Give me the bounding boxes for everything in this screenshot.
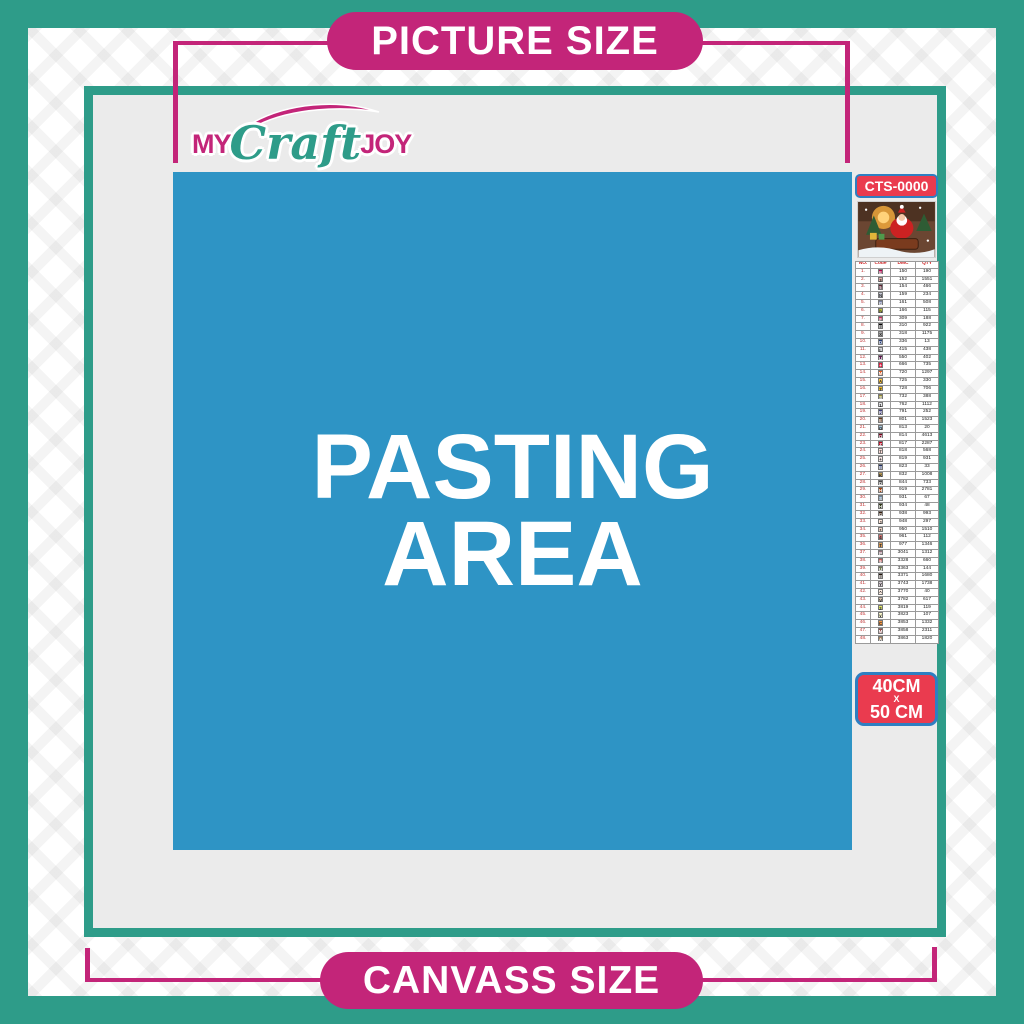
table-row: 6.h166115	[856, 307, 939, 315]
table-cell: +	[871, 362, 891, 370]
table-cell: K	[871, 471, 891, 479]
table-row: 28.D844733	[856, 479, 939, 487]
table-cell: 5	[871, 284, 891, 292]
table-cell: 1680	[916, 573, 939, 581]
legend-column-header: QTY	[916, 262, 939, 269]
table-cell: 1551	[916, 276, 939, 284]
color-code-swatch: G	[878, 511, 884, 517]
table-cell: 2	[871, 604, 891, 612]
table-cell: 801	[891, 417, 916, 425]
table-cell: 415	[891, 346, 916, 354]
table-cell: 336	[891, 339, 916, 347]
table-cell: L	[871, 346, 891, 354]
table-cell: 725	[891, 378, 916, 386]
color-legend-table: NO.CodeDMCQTY 1.E1501902.315215513.51544…	[855, 261, 939, 644]
color-code-swatch: M	[878, 370, 884, 376]
table-row: 12.U550402	[856, 354, 939, 362]
color-code-swatch: F	[878, 316, 884, 322]
table-row: 44.23819119	[856, 604, 939, 612]
table-cell: 813	[891, 424, 916, 432]
table-row: 31.H93448	[856, 503, 939, 511]
canvass-size-bracket-left-stub	[85, 948, 90, 982]
table-cell: M	[871, 628, 891, 636]
table-row: 11.L415438	[856, 346, 939, 354]
table-row: 36.T9771346	[856, 542, 939, 550]
pasting-area-line2: AREA	[311, 511, 713, 598]
table-cell: U	[871, 354, 891, 362]
table-cell: 13.	[856, 362, 871, 370]
table-cell: 10.	[856, 339, 871, 347]
table-row: 34.*9501510	[856, 526, 939, 534]
table-cell: 310	[891, 323, 916, 331]
picture-size-bracket-right-stub	[845, 41, 850, 163]
color-code-swatch: U	[878, 566, 884, 572]
table-row: 40.B33711680	[856, 573, 939, 581]
table-cell: Y	[871, 581, 891, 589]
table-cell: 1008	[916, 471, 939, 479]
color-code-swatch: T	[878, 542, 884, 548]
table-cell: 388	[916, 393, 939, 401]
table-row: 14.M7201297	[856, 370, 939, 378]
table-cell: 3853	[891, 620, 916, 628]
table-cell: 330	[916, 378, 939, 386]
table-cell: 402	[916, 354, 939, 362]
table-cell: 159	[891, 292, 916, 300]
table-cell: +	[871, 456, 891, 464]
table-cell: 817	[891, 440, 916, 448]
table-cell: 23.	[856, 440, 871, 448]
table-cell: 36.	[856, 542, 871, 550]
table-cell: 31.	[856, 503, 871, 511]
table-cell: B	[871, 323, 891, 331]
table-row: 7.F309188	[856, 315, 939, 323]
color-code-swatch: S	[878, 495, 884, 501]
canvass-size-banner: CANVASS SIZE	[320, 952, 703, 1009]
table-cell: 47.	[856, 628, 871, 636]
table-cell: S	[871, 495, 891, 503]
table-cell: 112	[916, 534, 939, 542]
pasting-area: PASTING AREA	[173, 172, 852, 850]
table-cell: 9	[871, 557, 891, 565]
table-cell: 823	[891, 464, 916, 472]
table-cell: 732	[891, 393, 916, 401]
table-cell: 931	[891, 495, 916, 503]
artwork-thumbnail	[857, 201, 936, 258]
table-cell: 3823	[891, 612, 916, 620]
pasting-area-label: PASTING AREA	[311, 424, 713, 599]
logo-word-craft: Craft	[230, 120, 362, 166]
table-cell: 3770	[891, 589, 916, 597]
table-row: 16.7728706	[856, 385, 939, 393]
table-cell: Z	[871, 440, 891, 448]
table-cell: 24.	[856, 448, 871, 456]
table-cell: 22.	[856, 432, 871, 440]
table-cell: 1510	[916, 526, 939, 534]
table-row: 33.J948297	[856, 518, 939, 526]
table-row: 9.X3181175	[856, 331, 939, 339]
table-row: 45.v3823107	[856, 612, 939, 620]
color-code-swatch: D	[878, 480, 884, 486]
table-cell: 3041	[891, 549, 916, 557]
color-code-swatch: G	[878, 300, 884, 306]
table-row: 30.S93167	[856, 495, 939, 503]
table-cell: 40	[916, 589, 939, 597]
table-cell: 67	[916, 495, 939, 503]
table-row: 19.R791252	[856, 409, 939, 417]
color-code-swatch: H	[878, 503, 884, 509]
product-code-badge: CTS-0000	[855, 174, 938, 198]
canvas-size-height: 50 CM	[870, 704, 923, 720]
color-code-swatch: R	[878, 409, 884, 415]
table-row: 41.Y37431738	[856, 581, 939, 589]
table-cell: 1332	[916, 620, 939, 628]
table-cell: S	[871, 393, 891, 401]
color-code-swatch: h	[878, 308, 884, 314]
table-cell: 43.	[856, 596, 871, 604]
table-cell: 3.	[856, 284, 871, 292]
table-cell: 832	[891, 471, 916, 479]
table-cell: *	[871, 526, 891, 534]
color-code-swatch: U	[878, 355, 884, 361]
table-cell: 5.	[856, 299, 871, 307]
color-legend-header: NO.CodeDMCQTY	[856, 262, 939, 269]
color-code-swatch: K	[878, 472, 884, 478]
table-cell: 7	[871, 448, 891, 456]
legend-column-header: Code	[871, 262, 891, 269]
table-row: 3.5154466	[856, 284, 939, 292]
color-code-swatch: D	[878, 339, 884, 345]
table-cell: Q	[871, 432, 891, 440]
table-row: 8.B310922	[856, 323, 939, 331]
table-cell: O	[871, 424, 891, 432]
color-code-swatch: Z	[878, 441, 884, 447]
table-cell: 25.	[856, 456, 871, 464]
table-cell: 9.	[856, 331, 871, 339]
table-cell: 29.	[856, 487, 871, 495]
canvas-size-width: 40CM	[872, 678, 920, 694]
table-cell: 728	[891, 385, 916, 393]
table-cell: 3328	[891, 557, 916, 565]
table-cell: v	[871, 612, 891, 620]
table-cell: 3858	[891, 628, 916, 636]
table-cell: 931	[916, 456, 939, 464]
table-row: 47.M38582311	[856, 628, 939, 636]
table-cell: 46.	[856, 620, 871, 628]
table-row: 39.U3363144	[856, 565, 939, 573]
table-cell: 45.	[856, 612, 871, 620]
table-cell: 1	[871, 401, 891, 409]
table-cell: 35.	[856, 534, 871, 542]
table-cell: D	[871, 339, 891, 347]
table-cell: 950	[891, 526, 916, 534]
table-row: 21.O81320	[856, 424, 939, 432]
table-cell: 48	[916, 503, 939, 511]
color-code-swatch: X	[878, 331, 884, 337]
table-cell: R	[871, 409, 891, 417]
color-code-swatch: Q	[878, 433, 884, 439]
color-code-swatch: 7	[878, 386, 884, 392]
color-code-swatch: +	[878, 362, 884, 368]
table-cell: 252	[916, 409, 939, 417]
table-cell: 166	[891, 307, 916, 315]
table-cell: 150	[891, 268, 916, 276]
color-code-swatch: M	[878, 628, 884, 634]
table-cell: 568	[916, 448, 939, 456]
table-cell: h	[871, 307, 891, 315]
table-cell: 4.	[856, 292, 871, 300]
table-cell: 13	[916, 339, 939, 347]
table-row: 37.P30411312	[856, 549, 939, 557]
logo-word-joy: JOY	[360, 131, 411, 162]
table-cell: 993	[916, 510, 939, 518]
color-code-swatch: 9	[878, 558, 884, 564]
table-cell: 735	[916, 362, 939, 370]
canvas-size-badge: 40CM X 50 CM	[855, 672, 938, 726]
table-cell: 2781	[916, 487, 939, 495]
table-cell: 3371	[891, 573, 916, 581]
table-row: 35.4961112	[856, 534, 939, 542]
table-cell: 666	[891, 362, 916, 370]
table-row: 4.N159234	[856, 292, 939, 300]
table-cell: 28.	[856, 479, 871, 487]
table-row: 18.17621112	[856, 401, 939, 409]
table-cell: 1738	[916, 581, 939, 589]
table-cell: 115	[916, 307, 939, 315]
color-code-swatch: E	[878, 269, 884, 275]
table-cell: M	[871, 370, 891, 378]
table-row: 26.B82333	[856, 464, 939, 472]
table-cell: 948	[891, 518, 916, 526]
table-cell: 20.	[856, 417, 871, 425]
table-row: 20.E8011523	[856, 417, 939, 425]
table-cell: 2311	[916, 628, 939, 636]
table-cell: 154	[891, 284, 916, 292]
color-code-swatch: O	[878, 425, 884, 431]
table-cell: 39.	[856, 565, 871, 573]
color-code-swatch: V	[878, 597, 884, 603]
color-code-swatch: A	[878, 378, 884, 384]
table-row: 1.E150190	[856, 268, 939, 276]
table-cell: 938	[891, 510, 916, 518]
color-code-swatch: C	[878, 620, 884, 626]
table-cell: 41.	[856, 581, 871, 589]
table-cell: 27.	[856, 471, 871, 479]
table-cell: 152	[891, 276, 916, 284]
table-cell: 3782	[891, 596, 916, 604]
table-cell: 234	[916, 292, 939, 300]
table-cell: 107	[916, 612, 939, 620]
table-row: 10.D33613	[856, 339, 939, 347]
table-cell: 144	[916, 565, 939, 573]
table-cell: 934	[891, 503, 916, 511]
table-cell: A	[871, 378, 891, 386]
table-cell: E	[871, 268, 891, 276]
table-cell: 32.	[856, 510, 871, 518]
table-cell: 15.	[856, 378, 871, 386]
table-cell: 922	[916, 323, 939, 331]
color-code-swatch: 7	[878, 448, 884, 454]
table-cell: 318	[891, 331, 916, 339]
table-cell: 762	[891, 401, 916, 409]
table-row: 24.7818568	[856, 448, 939, 456]
color-code-swatch: 4	[878, 534, 884, 540]
table-cell: B	[871, 573, 891, 581]
table-cell: B	[871, 464, 891, 472]
canvass-size-bracket-right-stub	[932, 947, 937, 982]
table-cell: H	[871, 503, 891, 511]
table-cell: 1297	[916, 370, 939, 378]
table-cell: 1112	[916, 401, 939, 409]
table-cell: 38.	[856, 557, 871, 565]
table-cell: ^	[871, 589, 891, 597]
table-row: 15.A725330	[856, 378, 939, 386]
table-cell: 40.	[856, 573, 871, 581]
color-code-swatch: 2	[878, 605, 884, 611]
table-cell: 7	[871, 385, 891, 393]
table-cell: G	[871, 510, 891, 518]
table-cell: 438	[916, 346, 939, 354]
table-cell: J	[871, 518, 891, 526]
color-code-swatch: ^	[878, 589, 884, 595]
table-cell: 1.	[856, 268, 871, 276]
table-cell: 617	[916, 596, 939, 604]
table-cell: N	[871, 292, 891, 300]
table-row: 2.31521551	[856, 276, 939, 284]
table-row: 25.+819931	[856, 456, 939, 464]
product-infographic: MY Craft JOY PASTING AREA CTS-0000	[0, 0, 1024, 1024]
table-cell: U	[871, 565, 891, 573]
color-code-swatch: L	[878, 347, 884, 353]
table-cell: 1820	[916, 635, 939, 643]
table-cell: 37.	[856, 549, 871, 557]
table-row: 38.93328660	[856, 557, 939, 565]
table-cell: 818	[891, 448, 916, 456]
table-cell: A	[871, 635, 891, 643]
table-cell: 34.	[856, 526, 871, 534]
table-cell: 21.	[856, 424, 871, 432]
table-cell: 3	[871, 276, 891, 284]
table-cell: 309	[891, 315, 916, 323]
table-cell: 1312	[916, 549, 939, 557]
table-cell: 819	[891, 456, 916, 464]
table-cell: 4	[871, 534, 891, 542]
table-cell: 3743	[891, 581, 916, 589]
table-cell: 30.	[856, 495, 871, 503]
table-cell: 33.	[856, 518, 871, 526]
table-cell: 119	[916, 604, 939, 612]
table-row: 5.G161508	[856, 299, 939, 307]
picture-size-bracket-left-stub	[173, 41, 178, 163]
table-cell: 3363	[891, 565, 916, 573]
color-code-swatch: A	[878, 636, 884, 642]
table-cell: 33	[916, 464, 939, 472]
table-cell: 8.	[856, 323, 871, 331]
table-cell: 1523	[916, 417, 939, 425]
table-cell: 26.	[856, 464, 871, 472]
table-cell: 2287	[916, 440, 939, 448]
table-cell: 466	[916, 284, 939, 292]
table-cell: 6.	[856, 307, 871, 315]
table-cell: 48.	[856, 635, 871, 643]
table-row: 29.H9192781	[856, 487, 939, 495]
artwork-thumbnail-image	[858, 202, 935, 257]
table-row: 17.S732388	[856, 393, 939, 401]
table-row: 13.+666735	[856, 362, 939, 370]
table-cell: 18.	[856, 401, 871, 409]
table-cell: 16.	[856, 385, 871, 393]
logo-word-my: MY	[192, 131, 231, 162]
color-code-swatch: +	[878, 456, 884, 462]
table-cell: 660	[916, 557, 939, 565]
table-cell: 17.	[856, 393, 871, 401]
table-cell: 188	[916, 315, 939, 323]
table-cell: 190	[916, 268, 939, 276]
pasting-area-line1: PASTING	[311, 424, 713, 511]
table-cell: 733	[916, 479, 939, 487]
table-cell: E	[871, 417, 891, 425]
table-row: 42.^377040	[856, 589, 939, 597]
table-cell: 4613	[916, 432, 939, 440]
table-cell: 791	[891, 409, 916, 417]
table-cell: 550	[891, 354, 916, 362]
color-code-swatch: B	[878, 573, 884, 579]
table-cell: 2.	[856, 276, 871, 284]
table-cell: 14.	[856, 370, 871, 378]
color-code-swatch: 1	[878, 402, 884, 408]
color-code-swatch: B	[878, 323, 884, 329]
color-code-swatch: 3	[878, 277, 884, 283]
table-cell: 720	[891, 370, 916, 378]
table-cell: H	[871, 487, 891, 495]
table-row: 27.K8321008	[856, 471, 939, 479]
table-row: 46.C38531332	[856, 620, 939, 628]
table-cell: D	[871, 479, 891, 487]
table-cell: C	[871, 620, 891, 628]
table-cell: 42.	[856, 589, 871, 597]
color-code-swatch: J	[878, 519, 884, 525]
color-code-swatch: Y	[878, 581, 884, 587]
table-cell: 814	[891, 432, 916, 440]
table-cell: 297	[916, 518, 939, 526]
table-cell: 706	[916, 385, 939, 393]
table-cell: 961	[891, 534, 916, 542]
table-cell: 11.	[856, 346, 871, 354]
color-code-swatch: B	[878, 464, 884, 470]
table-cell: 3819	[891, 604, 916, 612]
color-code-swatch: S	[878, 394, 884, 400]
color-code-swatch: 5	[878, 284, 884, 290]
table-cell: G	[871, 299, 891, 307]
table-cell: 20	[916, 424, 939, 432]
brand-logo: MY Craft JOY	[192, 98, 382, 162]
table-cell: 161	[891, 299, 916, 307]
table-cell: T	[871, 542, 891, 550]
table-cell: 844	[891, 479, 916, 487]
table-row: 43.V3782617	[856, 596, 939, 604]
table-cell: F	[871, 315, 891, 323]
table-cell: X	[871, 331, 891, 339]
table-cell: 12.	[856, 354, 871, 362]
color-code-swatch: E	[878, 417, 884, 423]
table-cell: 44.	[856, 604, 871, 612]
color-code-swatch: v	[878, 612, 884, 618]
color-code-swatch: P	[878, 550, 884, 556]
color-code-swatch: H	[878, 487, 884, 493]
table-cell: 1175	[916, 331, 939, 339]
table-cell: 508	[916, 299, 939, 307]
table-cell: 1346	[916, 542, 939, 550]
legend-column-header: DMC	[891, 262, 916, 269]
